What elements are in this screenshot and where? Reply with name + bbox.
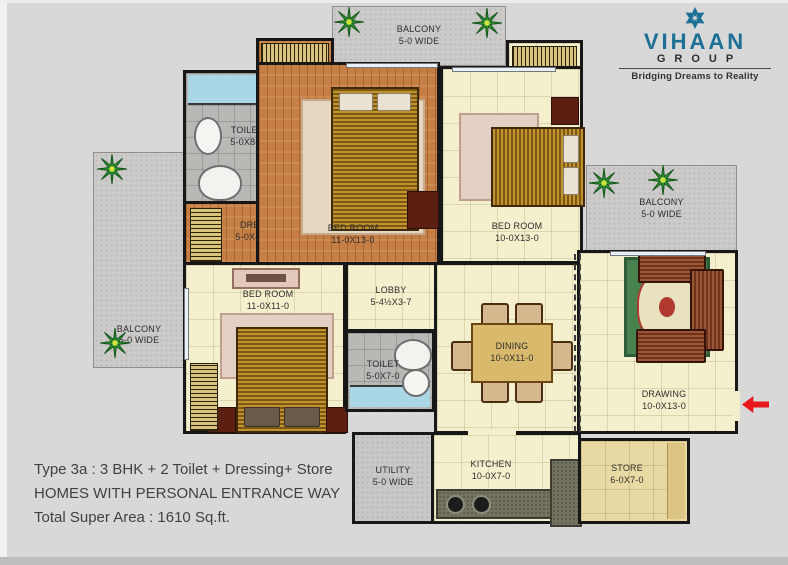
plan-area-line: Total Super Area : 1610 Sq.ft. <box>34 506 454 530</box>
window <box>346 63 438 68</box>
brand-divider <box>619 68 771 69</box>
window <box>452 67 556 72</box>
window <box>184 288 189 360</box>
entrance-opening <box>733 391 740 421</box>
wardrobe <box>512 46 577 68</box>
room-dining: DINING10-0X11-0 <box>434 262 580 434</box>
pillow <box>563 135 579 163</box>
dining-table: DINING10-0X11-0 <box>471 323 553 383</box>
pillow <box>377 93 411 111</box>
plant-icon <box>97 154 127 184</box>
room-toilet-2: TOILET5-0X7-0 <box>345 330 435 412</box>
plant-icon <box>100 328 130 358</box>
door-opening <box>468 430 516 435</box>
floor-plan-canvas: BALCONY5-0 WIDE BALCONY5-0 WIDE BALCONY5… <box>0 0 788 565</box>
double-bed <box>331 87 419 231</box>
wardrobe <box>261 43 329 63</box>
plant-icon <box>648 165 678 195</box>
room-label: DRAWING10-0X13-0 <box>618 389 710 412</box>
entrance-arrow-icon <box>742 396 769 413</box>
room-label: BED ROOM11-0X13-0 <box>303 223 403 246</box>
room-label: BALCONY5-0 WIDE <box>397 24 441 47</box>
room-bedroom-3: BED ROOM11-0X11-0 <box>183 262 346 434</box>
double-bed <box>491 127 585 207</box>
plant-icon <box>334 7 364 37</box>
room-bedroom-2: BED ROOM10-0X13-0 <box>440 66 583 264</box>
plant-icon <box>589 168 619 198</box>
room-label: STORE6-0X7-0 <box>593 463 661 486</box>
bedside-table <box>551 97 579 125</box>
room-bedroom-1: BED ROOM11-0X13-0 <box>256 62 440 266</box>
room-label: TOILET5-0X7-0 <box>352 359 414 382</box>
gas-burner <box>472 495 491 514</box>
room-store: STORE6-0X7-0 <box>578 438 690 524</box>
room-label: DINING10-0X11-0 <box>490 341 533 364</box>
dresser <box>232 268 300 289</box>
plan-entrance-line: HOMES WITH PERSONAL ENTRANCE WAY <box>34 482 454 506</box>
room-label: BED ROOM11-0X11-0 <box>226 289 310 312</box>
toilet-wc <box>198 165 242 201</box>
room-label: BALCONY5-0 WIDE <box>639 197 683 220</box>
wardrobe <box>190 208 222 262</box>
brand-group: GROUP <box>648 53 742 66</box>
page-edge-bottom <box>0 557 788 565</box>
partition-dashed-line <box>574 254 581 432</box>
window <box>610 251 706 256</box>
brand-tagline: Bridging Dreams to Reality <box>631 71 758 82</box>
sofa <box>636 329 706 363</box>
page-edge-left <box>0 0 7 565</box>
bedside-table <box>407 191 439 229</box>
page-edge-top <box>0 0 788 3</box>
pillow <box>284 407 320 427</box>
plan-description: Type 3a : 3 BHK + 2 Toilet + Dressing+ S… <box>34 458 454 530</box>
pillow <box>563 167 579 195</box>
wardrobe <box>190 363 218 431</box>
plant-icon <box>472 8 502 38</box>
room-label: BED ROOM10-0X13-0 <box>467 221 567 244</box>
double-bed <box>236 327 328 433</box>
brand-name: VIHAAN <box>644 30 746 53</box>
brand-logo: VIHAAN GROUP Bridging Dreams to Reality <box>606 6 784 82</box>
room-label: LOBBY5-4½X3-7 <box>356 285 426 308</box>
store-shelf <box>667 443 685 519</box>
pillow <box>339 93 373 111</box>
room-lobby: LOBBY5-4½X3-7 <box>345 262 437 332</box>
room-label: KITCHEN10-0X7-0 <box>448 459 534 482</box>
plan-type-line: Type 3a : 3 BHK + 2 Toilet + Dressing+ S… <box>34 458 454 482</box>
room-drawing: DRAWING10-0X13-0 <box>577 250 738 434</box>
brand-flower-icon <box>683 6 707 30</box>
pillow <box>244 407 280 427</box>
